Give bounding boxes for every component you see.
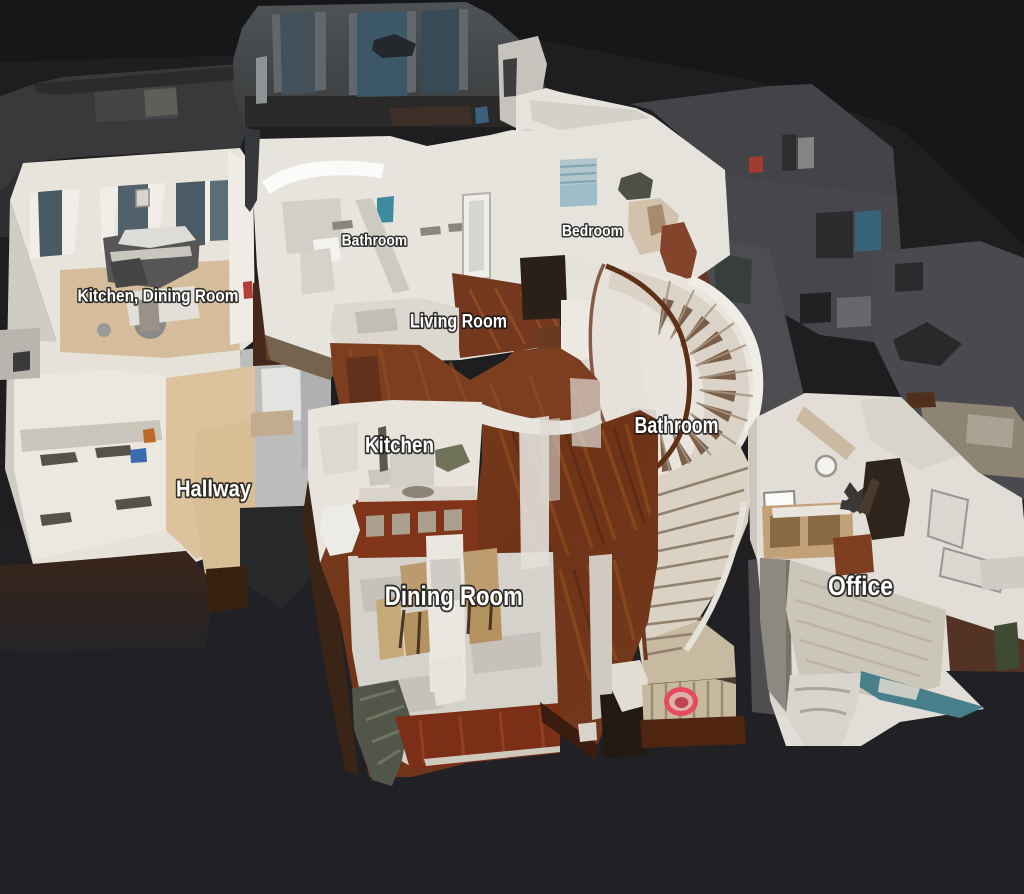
svg-text:Bathroom: Bathroom	[635, 412, 719, 438]
svg-text:Living Room: Living Room	[410, 312, 507, 333]
svg-text:Bedroom: Bedroom	[562, 223, 623, 240]
svg-text:Office: Office	[828, 571, 893, 601]
svg-text:Kitchen: Kitchen	[365, 433, 434, 458]
svg-text:Kitchen, Dining Room: Kitchen, Dining Room	[78, 286, 239, 306]
svg-text:Hallway: Hallway	[176, 476, 251, 502]
svg-text:Bathroom: Bathroom	[342, 233, 408, 250]
svg-text:Dining Room: Dining Room	[385, 581, 523, 611]
